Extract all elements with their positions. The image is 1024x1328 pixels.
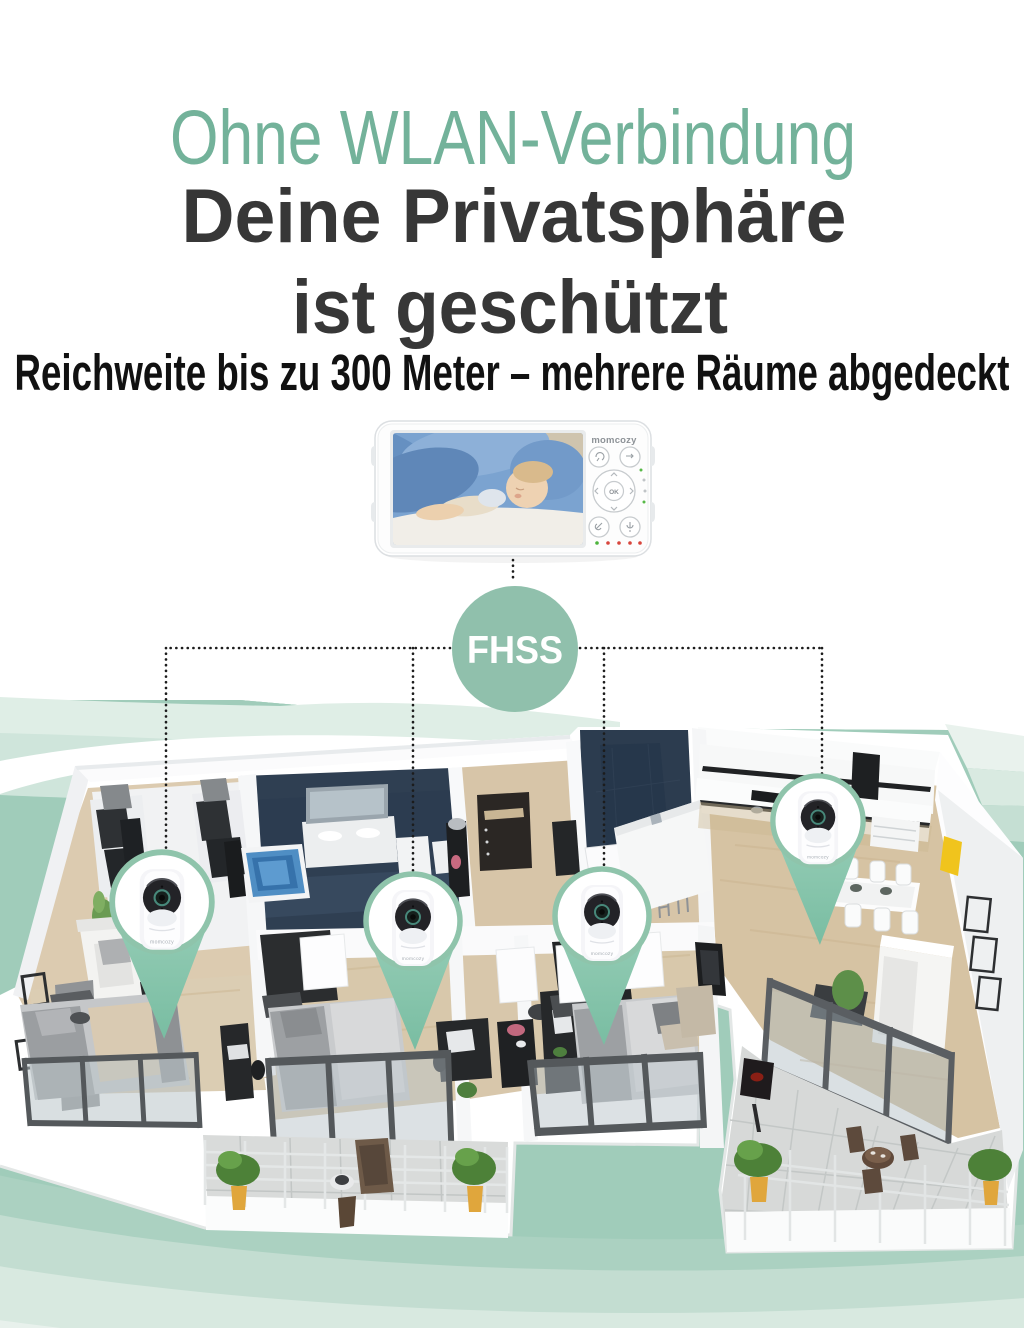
- svg-text:OK: OK: [609, 489, 619, 496]
- svg-text:Ohne WLAN-Verbindung: Ohne WLAN-Verbindung: [170, 95, 856, 181]
- svg-text:FHSS: FHSS: [467, 629, 563, 672]
- svg-text:Reichweite bis zu 300 Meter –: Reichweite bis zu 300 Meter – mehrere Rä…: [15, 344, 1010, 401]
- svg-text:ist geschützt: ist geschützt: [292, 265, 728, 350]
- svg-text:Deine Privatsphäre: Deine Privatsphäre: [182, 174, 847, 259]
- svg-text:momcozy: momcozy: [591, 435, 637, 446]
